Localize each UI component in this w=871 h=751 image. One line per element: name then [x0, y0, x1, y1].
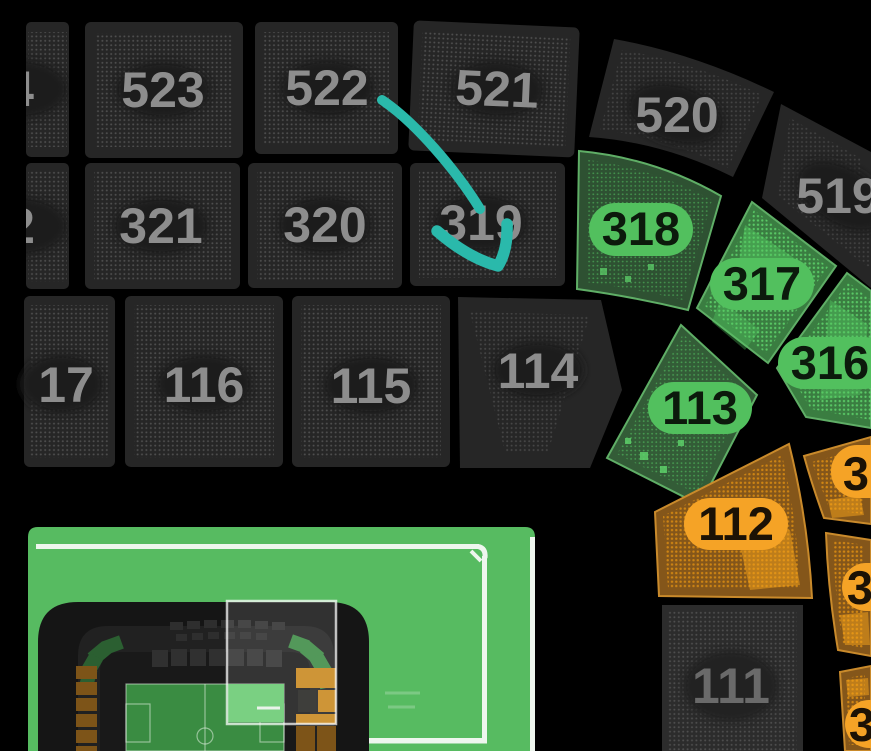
svg-text:320: 320: [283, 197, 366, 253]
svg-text:316: 316: [791, 336, 869, 389]
svg-text:520: 520: [635, 87, 718, 143]
svg-text:115: 115: [331, 358, 412, 414]
svg-text:523: 523: [121, 62, 204, 118]
svg-text:318: 318: [602, 202, 680, 255]
svg-text:116: 116: [164, 357, 245, 413]
svg-text:113: 113: [662, 381, 738, 434]
svg-text:3: 3: [847, 561, 871, 614]
svg-text:17: 17: [38, 357, 94, 413]
svg-text:522: 522: [285, 60, 368, 116]
svg-text:111: 111: [692, 658, 770, 714]
svg-text:317: 317: [723, 257, 801, 310]
svg-text:3: 3: [843, 447, 869, 500]
svg-text:112: 112: [698, 497, 774, 550]
svg-text:321: 321: [119, 198, 202, 254]
svg-text:521: 521: [454, 59, 540, 119]
svg-text:519: 519: [796, 168, 871, 224]
svg-text:3: 3: [849, 698, 871, 751]
svg-text:114: 114: [498, 343, 579, 399]
